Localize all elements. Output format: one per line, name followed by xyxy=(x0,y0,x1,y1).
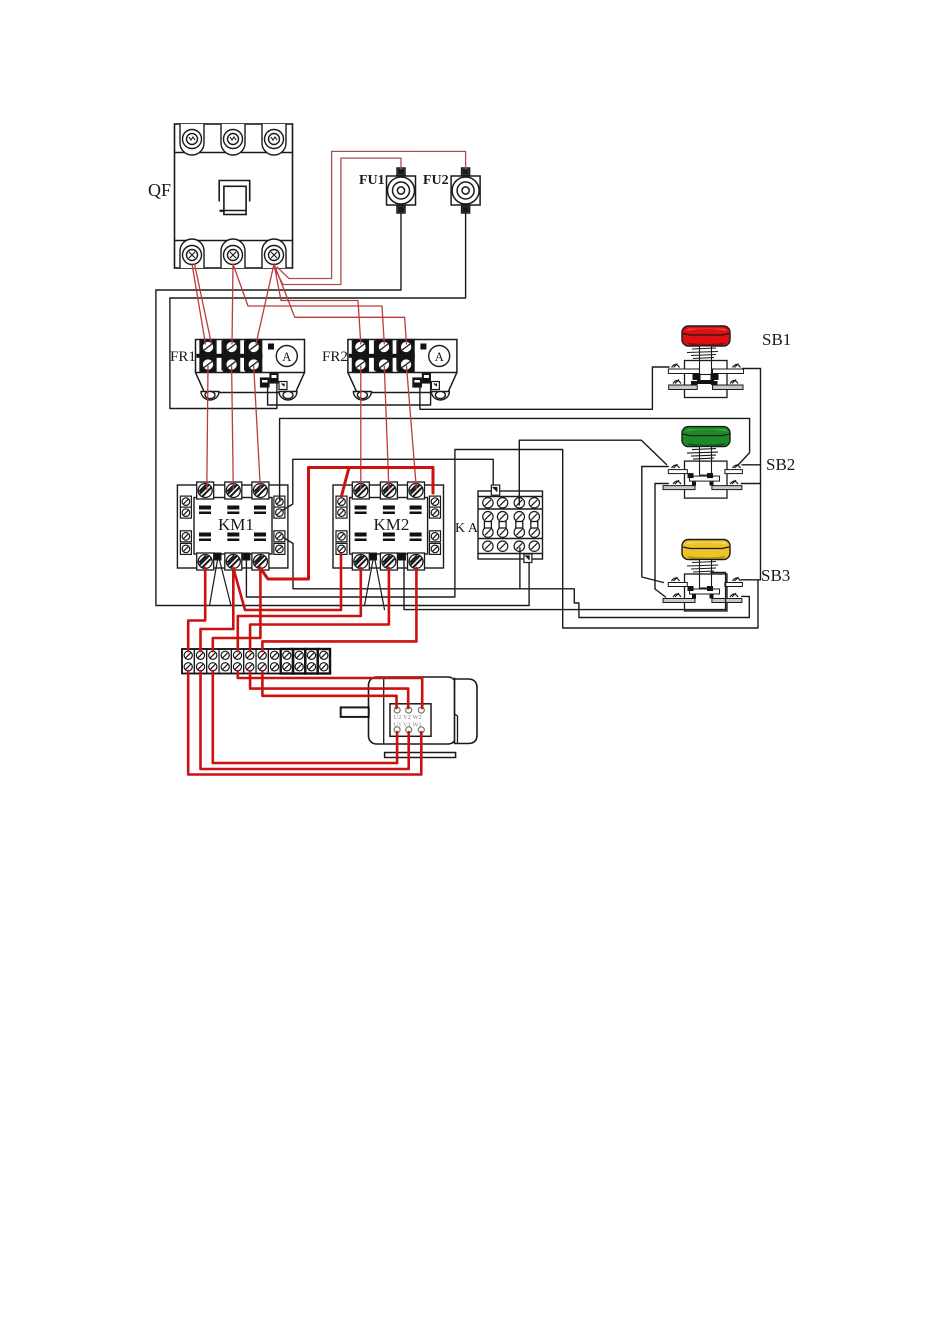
svg-text:FU1: FU1 xyxy=(359,173,385,188)
svg-text:FR1: FR1 xyxy=(170,349,196,365)
svg-text:SB1: SB1 xyxy=(762,330,791,349)
svg-text:FR2: FR2 xyxy=(322,349,348,365)
svg-text:QF: QF xyxy=(148,180,171,200)
svg-text:A: A xyxy=(435,350,444,364)
svg-text:A: A xyxy=(282,350,291,364)
svg-text:KM1: KM1 xyxy=(218,515,254,534)
svg-text:SB2: SB2 xyxy=(766,455,795,474)
svg-text:FU2: FU2 xyxy=(423,173,449,188)
svg-text:K A: K A xyxy=(455,521,479,536)
svg-text:KM2: KM2 xyxy=(374,515,410,534)
svg-text:SB3: SB3 xyxy=(761,566,790,585)
svg-text:U2 V2 W2: U2 V2 W2 xyxy=(394,714,422,721)
svg-text:U1 V1 W1: U1 V1 W1 xyxy=(394,722,422,729)
